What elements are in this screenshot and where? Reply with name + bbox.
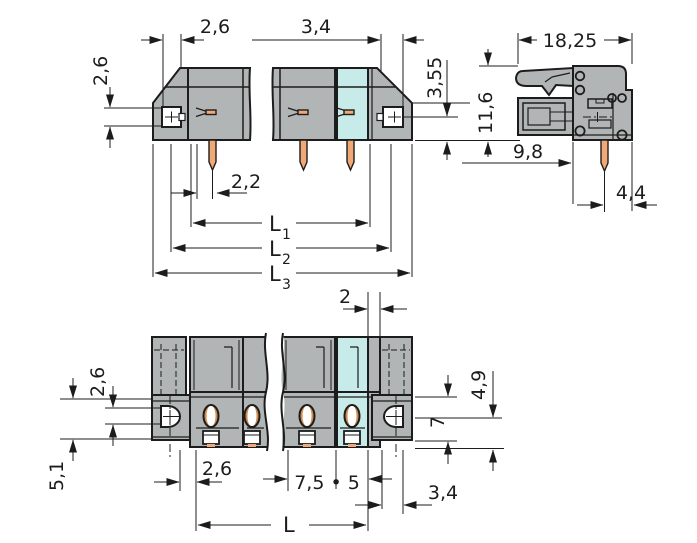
dim-bottom-flange-height: 2,6: [87, 367, 161, 446]
dim-bottom-edge-offset: 2,6: [154, 450, 232, 531]
front-solder-hole-left: [162, 107, 185, 127]
drawing-canvas: 2,6 3,4 2,6 3,55 2,2: [0, 0, 697, 543]
dim-label: 5,1: [46, 461, 68, 491]
bottom-break-lines: [265, 333, 285, 451]
dim-label: L: [269, 262, 281, 286]
front-body-left: [153, 68, 251, 140]
dim-side-total-width: 18,25: [518, 30, 632, 64]
dim-label: 4,4: [616, 182, 646, 204]
dim-label: 11,6: [475, 92, 497, 134]
dim-label: 2,2: [231, 171, 261, 193]
front-view: [153, 68, 412, 170]
dim-label: L: [269, 237, 281, 261]
dim-label-sub: 2: [282, 252, 291, 268]
dim-label: L: [269, 212, 281, 236]
dim-front-l2: L 2: [171, 144, 391, 268]
dim-side-depth: 9,8: [462, 141, 573, 204]
pin-icon: [347, 140, 354, 170]
dim-bottom-gap: 2: [339, 286, 407, 340]
dim-label: 3,4: [428, 482, 458, 504]
dim-label: L: [283, 513, 295, 537]
dim-label: 9,8: [513, 141, 543, 163]
dim-bottom-body-height: 7: [415, 375, 457, 464]
dim-front-l3: L 3: [153, 144, 412, 293]
dim-label: 7: [427, 416, 449, 428]
pin-icon: [601, 140, 608, 171]
dim-label-sub: 3: [282, 277, 291, 293]
dim-label: 3,4: [301, 16, 331, 38]
bottom-view: [152, 333, 412, 458]
dim-bottom-corner-offset: 3,4: [355, 450, 458, 514]
dim-front-side-height: 2,6: [90, 56, 161, 148]
dim-label: 2,6: [200, 16, 230, 38]
dim-label: 4,9: [468, 370, 490, 400]
dim-front-right-height: 3,55: [404, 57, 520, 160]
side-lever: [516, 68, 573, 95]
dim-side-pin-to-edge: 4,4: [577, 142, 657, 211]
front-accent-pole: [337, 68, 368, 140]
dim-label-sub: 1: [282, 227, 291, 243]
front-solder-pins: [209, 140, 354, 170]
dim-label: 2: [339, 286, 351, 308]
dim-label: 2,6: [90, 56, 112, 86]
technical-drawing: 2,6 3,4 2,6 3,55 2,2: [0, 0, 697, 543]
dim-label: 18,25: [543, 30, 597, 52]
bottom-accent-back: [337, 337, 368, 392]
dim-bottom-length: L: [198, 513, 366, 537]
dim-label: 3,55: [424, 57, 446, 99]
pin-icon: [300, 140, 307, 170]
dim-label: 2,6: [87, 367, 109, 397]
dim-label: 7,5 • 5: [294, 472, 360, 494]
side-view: [516, 66, 632, 212]
dim-label: 2,6: [202, 458, 232, 480]
pin-icon: [209, 140, 216, 170]
